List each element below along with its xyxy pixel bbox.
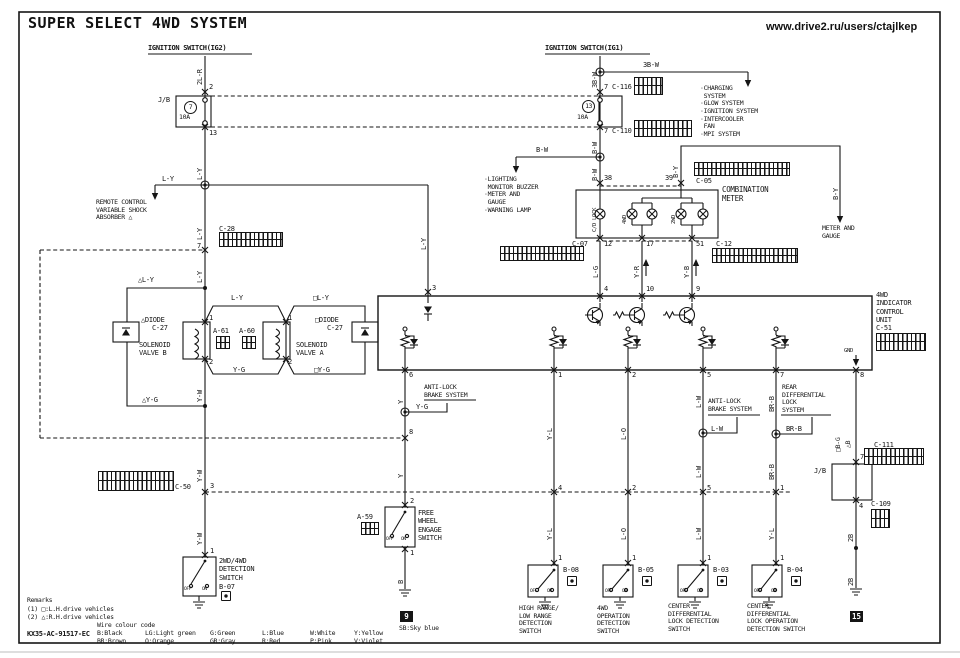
connector-label-a60: A-60 xyxy=(239,327,255,335)
switch-hilo-label: HIGH RANGE/ LOW RANGE DETECTION SWITCH xyxy=(519,605,559,636)
wire-label-ly: L-Y xyxy=(231,294,243,302)
terminal-number: 6 xyxy=(409,371,413,379)
fuse-number-icon: 13 xyxy=(582,100,595,113)
wire-label-yg: Y-G xyxy=(233,366,245,374)
control-unit-label: 4WD INDICATOR CONTROL UNIT xyxy=(876,291,911,324)
switch-4wd-op-label: 4WD OPERATION DETECTION SWITCH xyxy=(597,605,630,636)
connector-icon-b04 xyxy=(791,576,801,586)
terminal-number: 3 xyxy=(210,482,214,490)
terminal-number: 1 xyxy=(288,314,292,322)
wire-label-3bw: 3B-W xyxy=(591,72,599,88)
switch-on-label: ON xyxy=(771,589,776,594)
solenoid-valve-a-label: SOLENOID VALVE A xyxy=(296,341,327,358)
ground-ref-9: 9 xyxy=(400,611,413,622)
terminal-number: 1 xyxy=(210,547,214,555)
colour-code: O:Orange xyxy=(145,638,174,646)
wire-label-yw: Y-W xyxy=(196,470,204,482)
wire-label-brb: BR-B xyxy=(768,396,776,412)
combination-meter-label: COMBINATION METER xyxy=(722,186,768,204)
connector-label-c109: C-109 xyxy=(871,500,891,508)
wire-label-lw: L-W xyxy=(711,425,723,433)
connector-icon-c110 xyxy=(634,120,692,137)
ig1-branch-systems-list: ·CHARGING SYSTEM ·GLOW SYSTEM ·IGNITION … xyxy=(700,85,758,139)
terminal-number: 2 xyxy=(288,358,292,366)
wire-label-y: Y xyxy=(397,400,405,404)
doc-code: KX35-AC-91517-EC xyxy=(27,630,90,638)
terminal-number: 4 xyxy=(604,285,608,293)
switch-center-diff-lock-op-label: CENTER DIFFERENTIAL LOCK OPERATION DETEC… xyxy=(747,603,805,634)
gnd-label: GND xyxy=(844,348,853,354)
connector-label-c50: C-50 xyxy=(175,483,191,491)
switch-on-label: ON xyxy=(697,589,702,594)
terminal-number: 12 xyxy=(604,240,612,248)
connector-icon-c07 xyxy=(500,246,584,261)
cd-lock-lamp-label: C/D LOCK xyxy=(592,208,598,232)
wire-label-b: B xyxy=(397,580,405,584)
abs-system-label: ANTI-LOCK BRAKE SYSTEM xyxy=(708,398,751,413)
colour-code: R:Red xyxy=(262,638,280,646)
watermark-url: www.drive2.ru/users/ctajlkep xyxy=(766,21,917,33)
junction-block-label: J/B xyxy=(158,96,170,104)
terminal-number: 7 xyxy=(604,127,608,135)
switch-off-label: OFF xyxy=(754,589,761,594)
switch-off-label: OFF xyxy=(530,589,537,594)
connector-label-b04: B-04 xyxy=(787,566,803,574)
connector-icon-b07 xyxy=(221,591,231,601)
wire-label-yl: Y-L xyxy=(546,428,554,440)
meter-gauge-label: METER AND GAUGE xyxy=(822,225,855,240)
connector-icon-c50 xyxy=(98,471,174,491)
connector-label-c12: C-12 xyxy=(716,240,732,248)
remote-shock-absorber-label: REMOTE CONTROL VARIABLE SHOCK ABSORBER △ xyxy=(96,199,147,222)
connector-icon-c51 xyxy=(876,333,926,351)
terminal-number: 1 xyxy=(558,554,562,562)
page-frame xyxy=(0,12,960,652)
wire-label-lw: L-W xyxy=(695,396,703,408)
connector-label-c116: C-116 xyxy=(612,83,632,91)
terminal-number: 2 xyxy=(632,371,636,379)
wire-label-yb: Y-B xyxy=(683,266,691,278)
terminal-number: 8 xyxy=(860,371,864,379)
connector-icon-c12 xyxy=(712,248,798,263)
terminal-number: 8 xyxy=(409,428,413,436)
wire-label-lo: L-O xyxy=(620,528,628,540)
switch-off-label: OFF xyxy=(605,589,612,594)
wiring-lines xyxy=(0,0,960,658)
terminal-number: 1 xyxy=(707,554,711,562)
wire-label-ly: L-Y xyxy=(196,271,204,283)
diode-left-label: △DIODE xyxy=(141,316,165,324)
wire-label-3bw: 3B-W xyxy=(643,61,659,69)
terminal-number: 7 xyxy=(780,371,784,379)
lamp-2wd-label: 2WD xyxy=(671,215,677,224)
connector-icon-a61 xyxy=(216,336,230,349)
connector-icon-a60 xyxy=(242,336,256,349)
connector-icon-b03 xyxy=(717,576,727,586)
wire-label-sbg: □B-G xyxy=(835,438,843,452)
wire-label-lg: L-G xyxy=(592,266,600,278)
connector-label-c51: C-51 xyxy=(876,324,892,332)
wire-label-bw: B-W xyxy=(536,146,548,154)
connector-label-b07: B-07 xyxy=(219,583,235,591)
wire-label-lo: L-O xyxy=(620,428,628,440)
wire-label-brb: BR-B xyxy=(786,425,802,433)
terminal-number: 3 xyxy=(432,284,436,292)
wire-label-yg: Y-G xyxy=(416,403,428,411)
wire-label-dyg: △Y-G xyxy=(142,396,158,404)
terminal-number: 7 xyxy=(197,242,201,250)
bw-branch-systems-list: ·LIGHTING MONITOR BUZZER ·METER AND GAUG… xyxy=(484,176,538,214)
connector-label-c110: C-110 xyxy=(612,127,632,135)
wire-label-ly: L-Y xyxy=(420,238,428,250)
lamp-4wd-label: 4WD xyxy=(622,215,628,224)
terminal-number: 2 xyxy=(410,497,414,505)
connector-label-a61: A-61 xyxy=(213,327,229,335)
indicator-control-unit-circuit xyxy=(378,293,872,373)
wire-label-ly: L-Y xyxy=(162,175,174,183)
terminal-number: 2 xyxy=(209,83,213,91)
wire-label-bw: B-W xyxy=(591,169,599,181)
wire-label-yl: Y-L xyxy=(768,528,776,540)
wire-label-yw: Y-W xyxy=(196,533,204,545)
remarks-title: Remarks xyxy=(27,597,52,605)
terminal-number: 13 xyxy=(209,129,217,137)
connector-icon-c111 xyxy=(864,448,924,465)
connector-label-c05: C-05 xyxy=(696,177,712,185)
colour-code: GR:Gray xyxy=(210,638,235,646)
terminal-number: 2 xyxy=(209,358,213,366)
switch-off-label: OFF xyxy=(386,537,393,542)
switch-center-diff-lock-label: CENTER DIFFERENTIAL LOCK DETECTION SWITC… xyxy=(668,603,719,634)
switch-on-label: ON xyxy=(202,587,207,592)
connector-label-c27: C-27 xyxy=(152,324,168,332)
switch-on-label: ON xyxy=(622,589,627,594)
terminal-number: 1 xyxy=(558,371,562,379)
wire-label-dly: △L-Y xyxy=(138,276,154,284)
wire-label-2b: 2B xyxy=(847,578,855,586)
switch-on-label: ON xyxy=(401,537,406,542)
diode-right-label: □DIODE xyxy=(315,316,339,324)
wire-label-yl: Y-L xyxy=(546,528,554,540)
colour-code: V:Violet xyxy=(354,638,383,646)
wire-label-syg: □Y-G xyxy=(314,366,330,374)
solenoid-valve-b-label: SOLENOID VALVE B xyxy=(139,341,170,358)
wire-label-lw: L-W xyxy=(695,528,703,540)
wire-label-ly: L-Y xyxy=(196,228,204,240)
connector-label-b03: B-03 xyxy=(713,566,729,574)
connector-icon-c05 xyxy=(694,162,790,176)
terminal-number: 5 xyxy=(707,371,711,379)
fuse-rating: 10A xyxy=(577,114,588,122)
terminal-number: 1 xyxy=(780,554,784,562)
wire-label-bw: B-W xyxy=(591,142,599,154)
terminal-number: 1 xyxy=(632,554,636,562)
wire-label-ly: L-Y xyxy=(196,168,204,180)
diagram-title: SUPER SELECT 4WD SYSTEM xyxy=(28,14,247,32)
junction-block-label: J/B xyxy=(814,467,826,475)
connector-label-b05: B-05 xyxy=(638,566,654,574)
wire-label-2lr: 2L-R xyxy=(196,69,204,85)
colour-code: P:Pink xyxy=(310,638,332,646)
terminal-number: 39 xyxy=(665,174,673,182)
ground-ref-15: 15 xyxy=(850,611,863,622)
fuse-rating: 10A xyxy=(179,114,190,122)
terminal-number: 2 xyxy=(632,484,636,492)
wire-label-brb: BR-B xyxy=(768,464,776,480)
wire-label-by: B-Y xyxy=(672,166,680,178)
terminal-number: 9 xyxy=(696,285,700,293)
terminal-number: 4 xyxy=(859,502,863,510)
wire-label-yr: Y-R xyxy=(633,266,641,278)
connector-label-a59: A-59 xyxy=(357,513,373,521)
terminal-number: 10 xyxy=(646,285,654,293)
rear-diff-lock-label: REAR DIFFERENTIAL LOCK SYSTEM xyxy=(782,384,825,415)
terminal-number: 5 xyxy=(707,484,711,492)
wire-label-lw: L-W xyxy=(695,466,703,478)
connector-label-b08: B-08 xyxy=(563,566,579,574)
terminal-number: 17 xyxy=(646,240,654,248)
ignition-switch-ig2-label: IGNITION SWITCH(IG2) xyxy=(148,44,226,52)
switch-off-label: OFF xyxy=(680,589,687,594)
switch-off-label: OFF xyxy=(184,587,191,592)
wiring-diagram-page: SUPER SELECT 4WD SYSTEM www.drive2.ru/us… xyxy=(0,0,960,658)
terminal-number: 1 xyxy=(209,314,213,322)
switch-on-label: ON xyxy=(547,589,552,594)
switch-2wd4wd-label: 2WD/4WD DETECTION SWITCH xyxy=(219,557,254,582)
connector-icon-c28 xyxy=(219,232,283,247)
connector-label-c27: C-27 xyxy=(327,324,343,332)
wire-label-by: B-Y xyxy=(832,188,840,200)
wire-label-sly: □L-Y xyxy=(313,294,329,302)
colour-code-sky-blue: SB:Sky blue xyxy=(399,625,439,633)
connector-icon-b05 xyxy=(642,576,652,586)
connector-icon-c109 xyxy=(871,509,890,528)
terminal-number: 7 xyxy=(604,83,608,91)
connector-icon-c116 xyxy=(634,77,663,95)
terminal-number: 1 xyxy=(780,484,784,492)
abs-system-label: ANTI-LOCK BRAKE SYSTEM xyxy=(424,384,467,399)
terminal-number: 38 xyxy=(604,174,612,182)
connector-icon-b08 xyxy=(567,576,577,586)
ignition-switch-ig1-label: IGNITION SWITCH(IG1) xyxy=(545,44,623,52)
wire-label-yw: Y-W xyxy=(196,390,204,402)
colour-code: BR:Brown xyxy=(97,638,126,646)
wire-label-db: △B xyxy=(845,441,853,448)
terminal-number: 1 xyxy=(410,549,414,557)
free-wheel-switch-label: FREE WHEEL ENGAGE SWITCH xyxy=(418,509,442,542)
connector-icon-a59 xyxy=(361,522,379,535)
terminal-number: 4 xyxy=(558,484,562,492)
wire-label-y: Y xyxy=(397,474,405,478)
wire-label-2b: 2B xyxy=(847,534,855,542)
terminal-number: 51 xyxy=(696,240,704,248)
